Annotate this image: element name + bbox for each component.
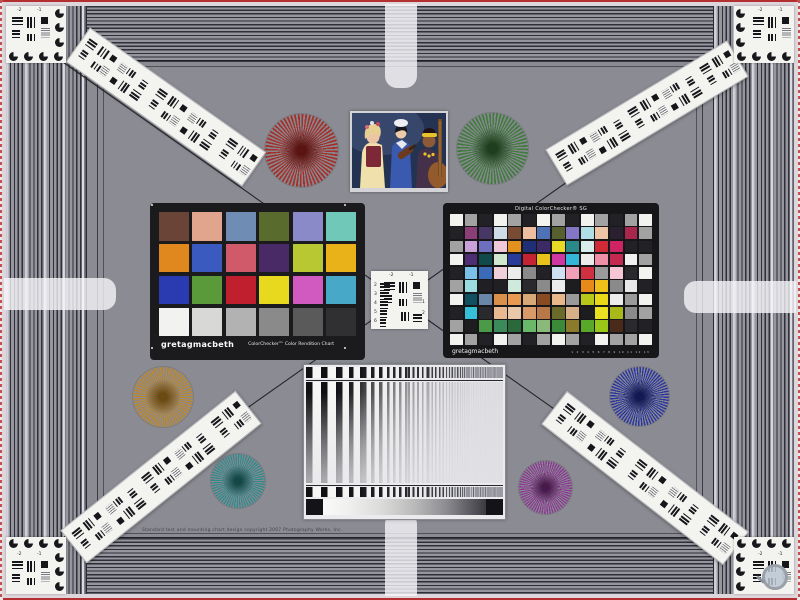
left-center-tab: [4, 278, 116, 310]
sg-ruler: 1 2 3 4 5 6 7 8 9 10 11 12 13: [571, 350, 650, 354]
usaf-number: -2: [758, 9, 763, 14]
color-patch: [508, 280, 521, 292]
bar-triplet: [718, 523, 731, 536]
bar-triplet: [555, 149, 568, 161]
bar-triplet: [688, 504, 699, 515]
color-patch: [537, 334, 550, 346]
color-patch: [610, 294, 623, 306]
color-patch: [192, 212, 222, 241]
bar-triplet: [563, 161, 573, 172]
bar-triplet: [627, 106, 640, 118]
black-square: [659, 500, 667, 508]
bar-triplet: [199, 138, 212, 150]
color-patch: [610, 267, 623, 279]
color-patch: [639, 294, 652, 306]
usaf-number: -2: [17, 553, 22, 558]
bar-triplet: [707, 75, 717, 86]
color-patch: [494, 320, 507, 332]
color-patch: [552, 307, 565, 319]
quarter-wedge-icon: [39, 539, 48, 548]
corner-target-bottom-left: -2-1: [6, 537, 66, 594]
sweep-segment: [387, 487, 409, 497]
color-patch: [552, 320, 565, 332]
bar-triplet: [155, 88, 168, 100]
color-patch: [465, 294, 478, 306]
sweep-segment: [475, 367, 489, 378]
test-chart-scene: -2-1 -2-1 -2-1 -2-1: [0, 0, 800, 600]
center-resolution-card: -2-12345612: [371, 271, 428, 329]
micro-text-block: [782, 28, 791, 38]
quarter-wedge-icon: [752, 52, 761, 61]
color-patch: [159, 308, 189, 337]
registration-dot: [344, 204, 346, 206]
color-patch: [566, 294, 579, 306]
bar-triplet: [753, 30, 761, 38]
siemens-star-blue: [610, 367, 669, 426]
sweep-segment: [428, 382, 446, 483]
black-square: [413, 282, 420, 289]
registration-dot: [151, 347, 153, 349]
color-patch: [494, 267, 507, 279]
siemens-star-orange: [133, 367, 193, 427]
black-square: [651, 93, 659, 101]
color-patch: [465, 280, 478, 292]
black-square: [599, 146, 607, 154]
micro-text-block: [41, 572, 50, 582]
color-patch: [566, 307, 579, 319]
color-patch: [625, 267, 638, 279]
bar-triplet: [210, 416, 223, 429]
color-patch: [479, 214, 492, 226]
color-patch: [508, 320, 521, 332]
sweep-segment: [408, 367, 428, 378]
bar-triplet: [225, 137, 238, 149]
color-patch: [159, 212, 189, 241]
bar-sweep-bottom: [306, 487, 503, 497]
color-patch: [595, 280, 608, 292]
black-square: [41, 561, 48, 568]
sweep-field: [306, 382, 503, 483]
color-patch: [581, 214, 594, 226]
black-square: [116, 517, 124, 525]
color-patch: [610, 320, 623, 332]
bar-triplet: [129, 89, 142, 101]
bar-triplet: [380, 310, 387, 318]
quarter-wedge-icon: [55, 38, 64, 47]
color-patch: [566, 214, 579, 226]
color-patch: [595, 241, 608, 253]
usaf-number: 6: [374, 320, 377, 325]
bar-triplet: [138, 79, 148, 90]
color-patch: [293, 276, 323, 305]
color-patch: [494, 241, 507, 253]
color-patch: [293, 244, 323, 273]
usaf-number: -1: [778, 9, 783, 14]
bar-triplet: [616, 448, 627, 459]
black-square: [723, 50, 731, 58]
colorchecker-24-card: gretagmacbeth ColorChecker™ Color Rendit…: [150, 203, 365, 360]
bar-triplet: [753, 561, 764, 569]
color-patch: [479, 280, 492, 292]
color-patch: [465, 267, 478, 279]
color-patch: [494, 227, 507, 239]
color-patch: [523, 267, 536, 279]
usaf-cluster: -2-1: [9, 553, 53, 591]
sweep-segment: [338, 367, 364, 378]
bar-triplet: [208, 129, 218, 140]
color-patch: [625, 334, 638, 346]
sweep-segment: [338, 382, 364, 483]
color-patch: [566, 320, 579, 332]
bar-triplet: [399, 299, 407, 306]
color-patch: [479, 227, 492, 239]
bar-triplet: [218, 149, 228, 160]
bar-triplet: [753, 17, 764, 25]
black-square: [249, 154, 257, 162]
bar-triplet: [669, 82, 680, 92]
siemens-star-purple: [519, 461, 572, 514]
color-patch: [508, 267, 521, 279]
bar-triplet: [27, 578, 35, 585]
bar-triplet: [700, 525, 711, 536]
registration-dot: [151, 204, 153, 206]
top-center-tab: [385, 4, 417, 88]
color-patch: [479, 254, 492, 266]
color-patch: [192, 276, 222, 305]
color-patch: [226, 212, 256, 241]
sweep-segment: [475, 487, 489, 497]
color-patch: [625, 214, 638, 226]
color-patch: [537, 294, 550, 306]
color-patch: [259, 212, 289, 241]
color-patch: [625, 280, 638, 292]
sweep-segment: [489, 487, 503, 497]
color-patch: [508, 254, 521, 266]
color-patch: [566, 334, 579, 346]
color-patch: [581, 307, 594, 319]
bar-triplet: [567, 141, 579, 154]
bottom-center-tab: [385, 512, 417, 596]
color-patch: [465, 307, 478, 319]
color-patch: [552, 280, 565, 292]
corner-target-bottom-right: -2-1: [734, 537, 794, 594]
color-patch: [523, 241, 536, 253]
quarter-wedge-icon: [9, 539, 18, 548]
color-patch: [581, 227, 594, 239]
sweep-segment: [387, 382, 409, 483]
bar-triplet: [768, 34, 776, 41]
color-patch: [508, 307, 521, 319]
color-patch: [450, 280, 463, 292]
quarter-wedge-icon: [736, 582, 745, 591]
bar-triplet: [613, 119, 623, 130]
bar-triplet: [707, 515, 720, 528]
bar-triplet: [167, 96, 179, 109]
bar-triplet: [678, 93, 690, 106]
bar-triplet: [141, 471, 154, 484]
bar-triplet: [690, 86, 703, 98]
black-square: [179, 126, 187, 134]
usaf-number: 4: [374, 302, 377, 307]
quarter-wedge-icon: [9, 52, 18, 61]
quarter-wedge-icon: [736, 9, 745, 18]
black-square: [109, 55, 117, 63]
bar-triplet: [722, 68, 733, 78]
quarter-wedge-icon: [55, 23, 64, 32]
quarter-wedge-icon: [54, 539, 63, 548]
quarter-wedge-icon: [767, 52, 776, 61]
sweep-segment: [462, 487, 476, 497]
bar-triplet: [133, 498, 146, 511]
color-patch: [450, 227, 463, 239]
color-patch: [566, 241, 579, 253]
colorchecker-grid: [159, 212, 356, 336]
color-patch: [625, 294, 638, 306]
color-patch: [552, 227, 565, 239]
color-patch: [494, 254, 507, 266]
color-patch: [552, 334, 565, 346]
quarter-wedge-icon: [736, 567, 745, 576]
corner-target-top-left: -2-1: [6, 6, 66, 63]
bar-triplet: [27, 17, 35, 28]
color-patch: [465, 320, 478, 332]
usaf-number: -1: [409, 274, 414, 279]
corner-target-top-right: -2-1: [734, 6, 794, 63]
colorchecker-brand: gretagmacbeth: [161, 340, 234, 349]
frequency-sweep-card: [303, 364, 506, 520]
usaf-cluster: -2-1: [750, 9, 794, 47]
color-patch: [639, 280, 652, 292]
color-patch: [537, 241, 550, 253]
sg-brand: gretagmacbeth: [452, 348, 498, 355]
color-patch: [450, 334, 463, 346]
color-patch: [523, 307, 536, 319]
color-patch: [465, 214, 478, 226]
usaf-cluster: -2-1: [9, 9, 53, 47]
color-patch: [192, 244, 222, 273]
color-patch: [537, 227, 550, 239]
bar-triplet: [182, 441, 193, 452]
quarter-wedge-icon: [737, 539, 746, 548]
bar-triplet: [604, 436, 615, 447]
sweep-segment: [462, 367, 476, 378]
bar-triplet: [127, 488, 138, 499]
usaf-number: 2: [422, 312, 425, 317]
black-square: [232, 401, 240, 409]
color-patch: [537, 320, 550, 332]
color-patch: [494, 214, 507, 226]
bar-triplet: [203, 442, 216, 455]
black-square: [179, 104, 187, 112]
sweep-segment: [306, 382, 338, 483]
color-patch: [226, 308, 256, 337]
usaf-number: -1: [37, 553, 42, 558]
color-patch: [226, 244, 256, 273]
bar-triplet: [27, 561, 35, 572]
right-center-tab: [684, 281, 796, 313]
color-patch: [595, 294, 608, 306]
color-patch: [581, 280, 594, 292]
quarter-wedge-icon: [736, 38, 745, 47]
color-patch: [450, 214, 463, 226]
color-patch: [523, 214, 536, 226]
bar-triplet: [126, 68, 137, 78]
sweep-segment: [428, 367, 446, 378]
color-patch: [479, 294, 492, 306]
bar-triplet: [574, 411, 587, 424]
bar-triplet: [646, 467, 659, 480]
black-square: [587, 444, 595, 452]
color-patch: [259, 308, 289, 337]
usaf-number: -2: [389, 274, 394, 279]
color-patch: [508, 227, 521, 239]
sweep-segment: [475, 382, 489, 483]
bar-triplet: [650, 112, 661, 122]
color-patch: [326, 212, 356, 241]
bar-triplet: [12, 17, 23, 25]
usaf-number: 2: [374, 284, 377, 289]
color-patch: [494, 294, 507, 306]
color-patch: [625, 254, 638, 266]
siemens-star-red: [265, 114, 338, 187]
bar-triplet: [413, 314, 422, 322]
bar-triplet: [399, 282, 407, 293]
quarter-wedge-icon: [782, 539, 791, 548]
bar-triplet: [676, 492, 687, 503]
sweep-segment: [363, 487, 387, 497]
color-patch: [595, 320, 608, 332]
color-patch: [479, 307, 492, 319]
color-patch: [523, 254, 536, 266]
sweep-segment: [363, 382, 387, 483]
micro-text-block: [413, 293, 422, 303]
color-patch: [610, 254, 623, 266]
usaf-number: -2: [17, 9, 22, 14]
color-patch: [293, 308, 323, 337]
color-patch: [465, 334, 478, 346]
color-patch: [326, 308, 356, 337]
color-patch: [595, 334, 608, 346]
color-patch: [259, 244, 289, 273]
color-patch: [581, 294, 594, 306]
color-patch: [479, 241, 492, 253]
color-patch: [537, 214, 550, 226]
colorchecker-title: ColorChecker™ Color Rendition Chart: [248, 342, 334, 347]
color-patch: [465, 227, 478, 239]
usaf-number: -1: [37, 9, 42, 14]
micro-text-block: [41, 28, 50, 38]
bar-triplet: [380, 301, 388, 309]
bar-triplet: [188, 130, 200, 143]
sweep-segment: [408, 487, 428, 497]
bar-triplet: [606, 137, 618, 150]
color-patch: [226, 276, 256, 305]
black-square: [41, 17, 48, 24]
color-patch: [610, 307, 623, 319]
quarter-wedge-icon: [55, 567, 64, 576]
bar-triplet: [152, 462, 165, 475]
sweep-segment: [462, 382, 476, 483]
siemens-star-teal: [211, 454, 265, 508]
micro-text-block: [169, 115, 181, 127]
sweep-segment: [306, 487, 338, 497]
color-patch: [494, 280, 507, 292]
color-patch: [625, 320, 638, 332]
color-patch: [326, 244, 356, 273]
sweep-segment: [446, 487, 462, 497]
color-patch: [508, 294, 521, 306]
color-patch: [595, 214, 608, 226]
color-patch: [450, 307, 463, 319]
quarter-wedge-icon: [55, 582, 64, 591]
bar-triplet: [618, 130, 631, 142]
color-patch: [595, 307, 608, 319]
color-patch: [610, 227, 623, 239]
color-patch: [523, 320, 536, 332]
sweep-segment: [489, 382, 503, 483]
bar-triplet: [555, 414, 566, 425]
bar-triplet: [578, 155, 589, 165]
usaf-number: 5: [374, 311, 377, 316]
sweep-segment: [338, 487, 364, 497]
color-patch: [610, 280, 623, 292]
color-patch: [479, 267, 492, 279]
bar-triplet: [380, 292, 389, 300]
quarter-wedge-icon: [55, 553, 64, 562]
color-patch: [552, 254, 565, 266]
quarter-wedge-icon: [24, 539, 33, 548]
quarter-wedge-icon: [752, 539, 761, 548]
black-square: [586, 420, 594, 428]
color-patch: [523, 280, 536, 292]
color-patch: [523, 227, 536, 239]
bar-triplet: [635, 118, 645, 129]
color-patch: [610, 214, 623, 226]
color-patch: [639, 254, 652, 266]
color-patch: [581, 267, 594, 279]
sg-grid: [450, 214, 652, 345]
bar-triplet: [685, 76, 695, 87]
color-patch: [450, 254, 463, 266]
bar-triplet: [196, 117, 207, 127]
bar-triplet: [196, 433, 207, 444]
bar-triplet: [380, 319, 386, 327]
color-patch: [494, 307, 507, 319]
bar-triplet: [768, 17, 776, 28]
color-patch: [581, 241, 594, 253]
color-patch: [450, 294, 463, 306]
bar-triplet: [221, 407, 234, 420]
bar-triplet: [83, 518, 96, 531]
usaf-number: 3: [374, 293, 377, 298]
bar-triplet: [595, 448, 608, 461]
color-patch: [552, 241, 565, 253]
sweep-segment: [363, 367, 387, 378]
bar-triplet: [711, 55, 723, 68]
color-patch: [581, 254, 594, 266]
bar-triplet: [237, 145, 249, 158]
colorchecker-sg-card: Digital ColorChecker® SG gretagmacbeth 1…: [443, 203, 659, 358]
color-patch: [639, 334, 652, 346]
sweep-segment: [489, 367, 503, 378]
color-patch: [639, 241, 652, 253]
black-square: [109, 77, 117, 85]
color-patch: [610, 241, 623, 253]
color-patch: [465, 254, 478, 266]
color-patch: [566, 227, 579, 239]
reference-photo-musicians: [350, 111, 448, 192]
black-square: [658, 476, 666, 484]
